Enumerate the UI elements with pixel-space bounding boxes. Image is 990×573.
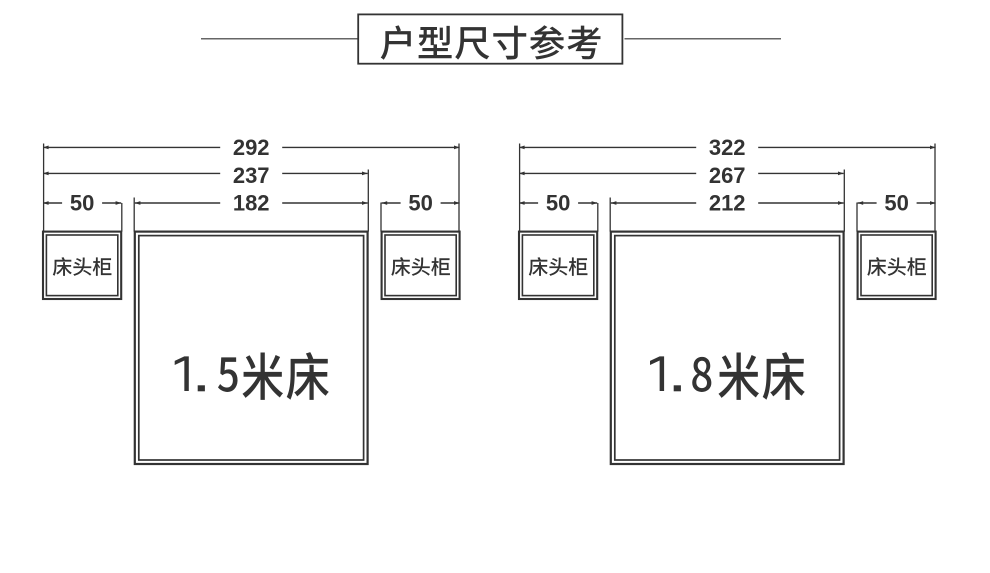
- svg-text:237: 237: [233, 163, 270, 188]
- svg-text:50: 50: [70, 191, 94, 216]
- svg-text:50: 50: [408, 191, 432, 216]
- svg-text:267: 267: [709, 163, 746, 188]
- svg-text:50: 50: [546, 191, 570, 216]
- svg-text:212: 212: [709, 191, 746, 216]
- svg-text:50: 50: [884, 191, 908, 216]
- svg-text:182: 182: [233, 191, 270, 216]
- svg-text:292: 292: [233, 135, 270, 160]
- svg-text:322: 322: [709, 135, 746, 160]
